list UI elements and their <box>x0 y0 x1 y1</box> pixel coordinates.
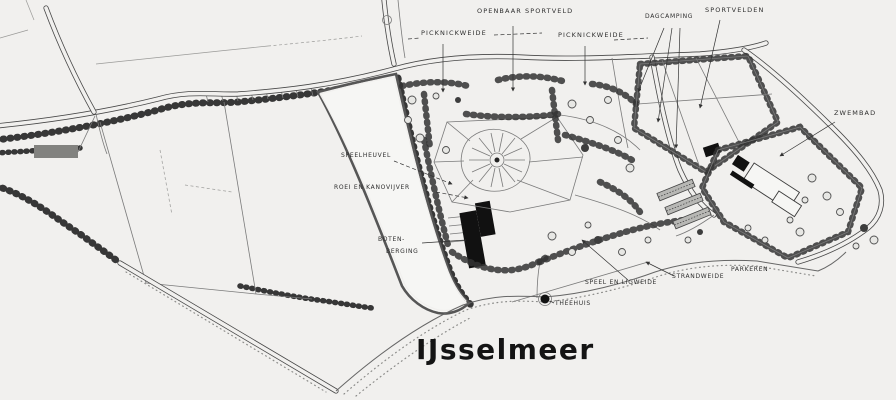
zwembad-area <box>702 127 862 258</box>
ijsselmeer-title: IJsselmeer <box>416 336 595 364</box>
label-roei-en-kanovijver: ROEI EN KANOVIJVER <box>334 185 410 191</box>
label-strandweide: STRANDWEIDE <box>672 274 724 280</box>
label-dagcamping: DAGCAMPING <box>645 14 693 20</box>
label-theehuis: THEEHUIS <box>555 301 591 307</box>
site-plan-map: PICKNICKWEIDE OPENBAAR SPORTVELD PICKNIC… <box>0 0 896 400</box>
dike-hatch-block <box>34 145 78 158</box>
label-picknickweide-right: PICKNICKWEIDE <box>558 32 624 39</box>
label-boten-berging-top: BOTEN- <box>378 237 405 243</box>
zwembad-black-building <box>732 155 750 172</box>
label-parkeren: PARKEREN <box>731 267 768 273</box>
label-boten-berging-bottom: BERGING <box>386 249 419 255</box>
theehuis-building <box>541 295 550 304</box>
shoreline <box>126 252 846 396</box>
label-picknickweide-left: PICKNICKWEIDE <box>421 30 487 37</box>
label-openbaar-sportveld: OPENBAAR SPORTVELD <box>477 8 573 15</box>
label-zwembad: ZWEMBAD <box>834 110 876 117</box>
label-speel-en-ligweide: SPEEL EN LIGWEIDE <box>585 280 657 286</box>
label-sportvelden: SPORTVELDEN <box>705 7 764 14</box>
label-speelheuvel: SPEELHEUVEL <box>341 153 391 159</box>
speelheuvel-mound <box>469 133 525 187</box>
